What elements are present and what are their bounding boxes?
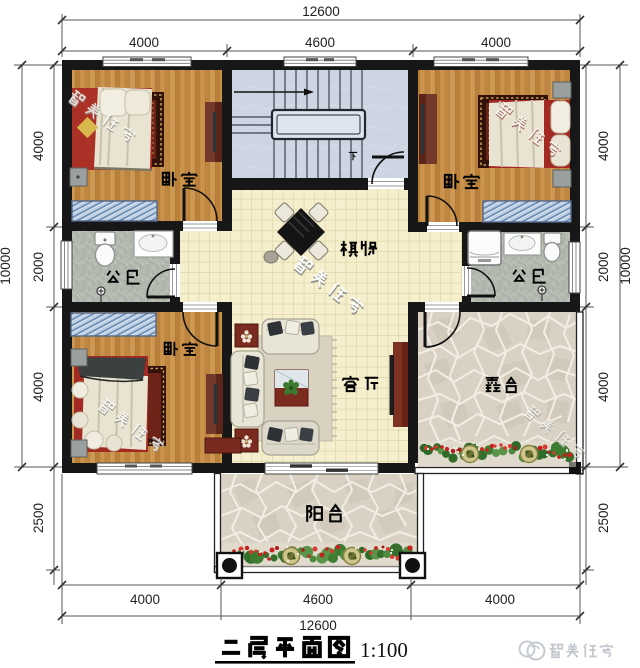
svg-text:10000: 10000 <box>618 247 633 285</box>
svg-text:4000: 4000 <box>130 592 160 607</box>
svg-text:2500: 2500 <box>31 503 46 533</box>
svg-text:4000: 4000 <box>485 592 515 607</box>
svg-text:2500: 2500 <box>596 503 611 533</box>
svg-text:4000: 4000 <box>129 35 159 50</box>
svg-text:4000: 4000 <box>31 372 46 402</box>
svg-text:4000: 4000 <box>596 372 611 402</box>
svg-text:4000: 4000 <box>596 131 611 161</box>
svg-text:12600: 12600 <box>299 618 337 633</box>
svg-text:4000: 4000 <box>31 131 46 161</box>
svg-text:2000: 2000 <box>596 252 611 282</box>
svg-text:4000: 4000 <box>481 35 511 50</box>
svg-text:2000: 2000 <box>31 252 46 282</box>
svg-text:1:100: 1:100 <box>360 638 408 662</box>
svg-text:4600: 4600 <box>303 592 333 607</box>
svg-text:10000: 10000 <box>0 247 13 285</box>
svg-text:4600: 4600 <box>305 35 335 50</box>
svg-text:12600: 12600 <box>302 4 340 19</box>
